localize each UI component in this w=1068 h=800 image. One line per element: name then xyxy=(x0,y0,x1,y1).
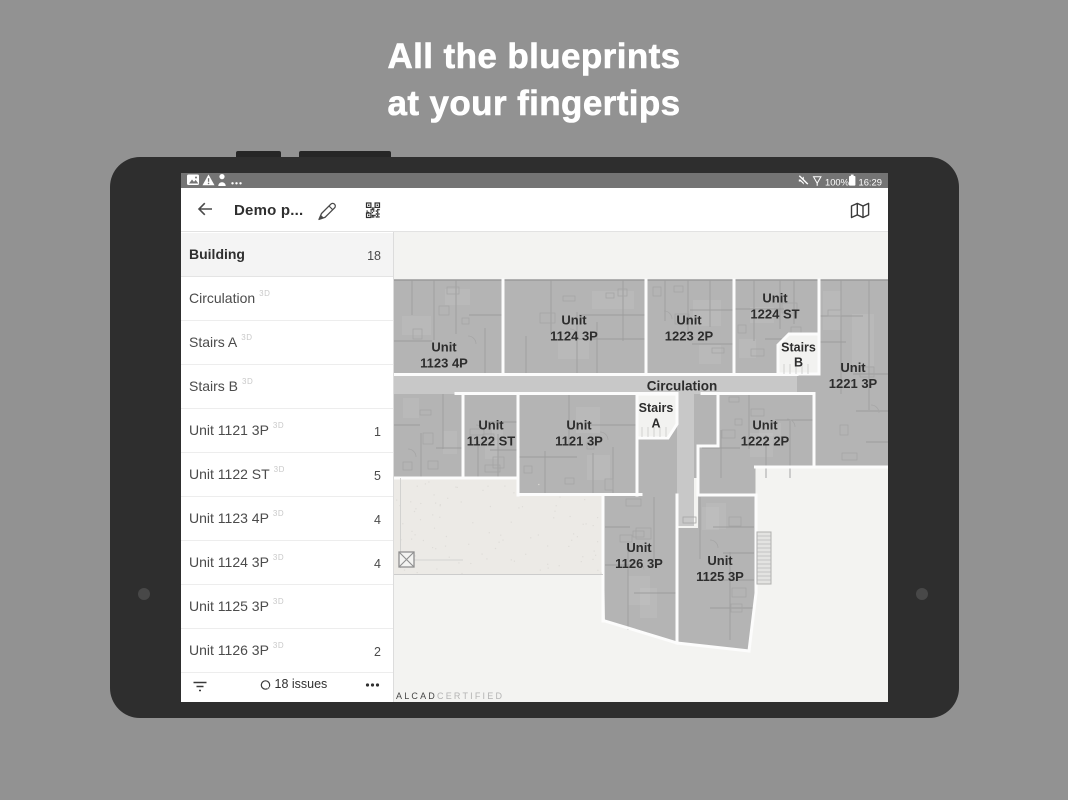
svg-text:16:29: 16:29 xyxy=(859,177,882,188)
svg-text:100%: 100% xyxy=(825,177,849,188)
